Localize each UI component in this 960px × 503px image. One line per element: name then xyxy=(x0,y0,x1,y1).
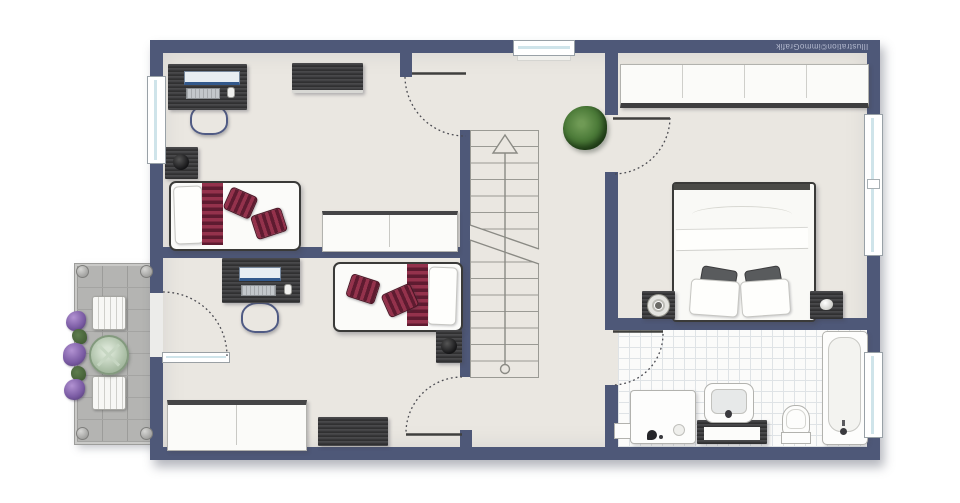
floor-plan-canvas: Illustration©immoGrafik xyxy=(0,0,960,503)
door-swing-arcs xyxy=(163,77,670,433)
door-symbols xyxy=(0,0,960,503)
door-leaves xyxy=(406,74,670,435)
watermark-text: Illustration©immoGrafik xyxy=(766,41,878,52)
